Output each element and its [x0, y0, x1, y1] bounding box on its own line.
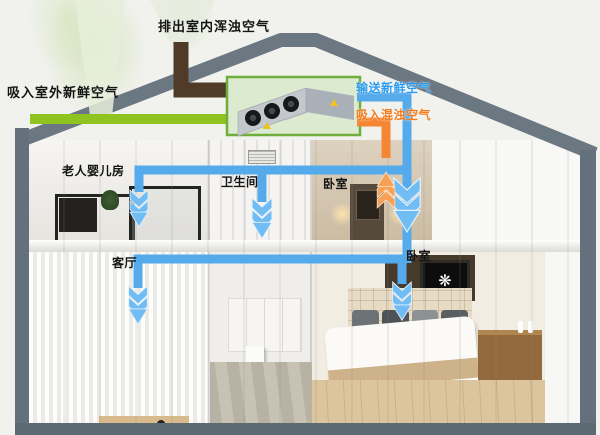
room-label-bedroom-upper: 卧室 [323, 175, 348, 192]
cabinet [228, 298, 302, 352]
fan [283, 96, 299, 112]
vase [518, 321, 523, 333]
label-intake-fresh: 吸入室外新鲜空气 [7, 82, 119, 101]
unit-callout-box [227, 77, 360, 135]
room-label-bedroom-lower: 卧室 [406, 247, 431, 264]
room-elder-baby [29, 140, 210, 240]
fresh-intake-pipe [30, 114, 232, 124]
glass-partition [129, 186, 201, 244]
sofa-pillows [55, 424, 175, 435]
fan [245, 110, 261, 126]
left-wall [15, 128, 29, 424]
right-wall [580, 150, 596, 424]
fan [264, 103, 280, 119]
kitchen-floor [210, 362, 312, 424]
room-label-elder-baby: 老人婴儿房 [62, 162, 125, 179]
label-supply-fresh: 输送新鲜空气 [356, 79, 431, 96]
house-interior: ❋ [29, 140, 580, 424]
room-bedroom-lower: ❋ [312, 252, 545, 424]
wall-art [356, 190, 380, 220]
room-kitchen [210, 252, 312, 424]
warning-sticker [330, 99, 338, 106]
vase [528, 321, 533, 333]
ceiling-vent [248, 150, 276, 164]
room-living [29, 252, 210, 424]
dark-panel [59, 198, 97, 232]
ventilation-diagram: ❋ [0, 0, 600, 435]
plant [101, 190, 119, 210]
ventilation-unit [238, 88, 354, 136]
exhaust-pipe [181, 42, 232, 90]
upper-right-wall [432, 140, 580, 240]
bedroom-floor [312, 380, 545, 424]
room-bathroom [210, 140, 312, 240]
room-label-bathroom: 卫生间 [221, 173, 259, 190]
lower-right-wall [545, 252, 580, 424]
label-return-stale: 吸入混浊空气 [356, 106, 431, 123]
label-exhaust-outdoor: 排出室内浑浊空气 [158, 16, 270, 35]
warning-sticker [263, 122, 271, 129]
room-label-living: 客厅 [112, 254, 137, 271]
